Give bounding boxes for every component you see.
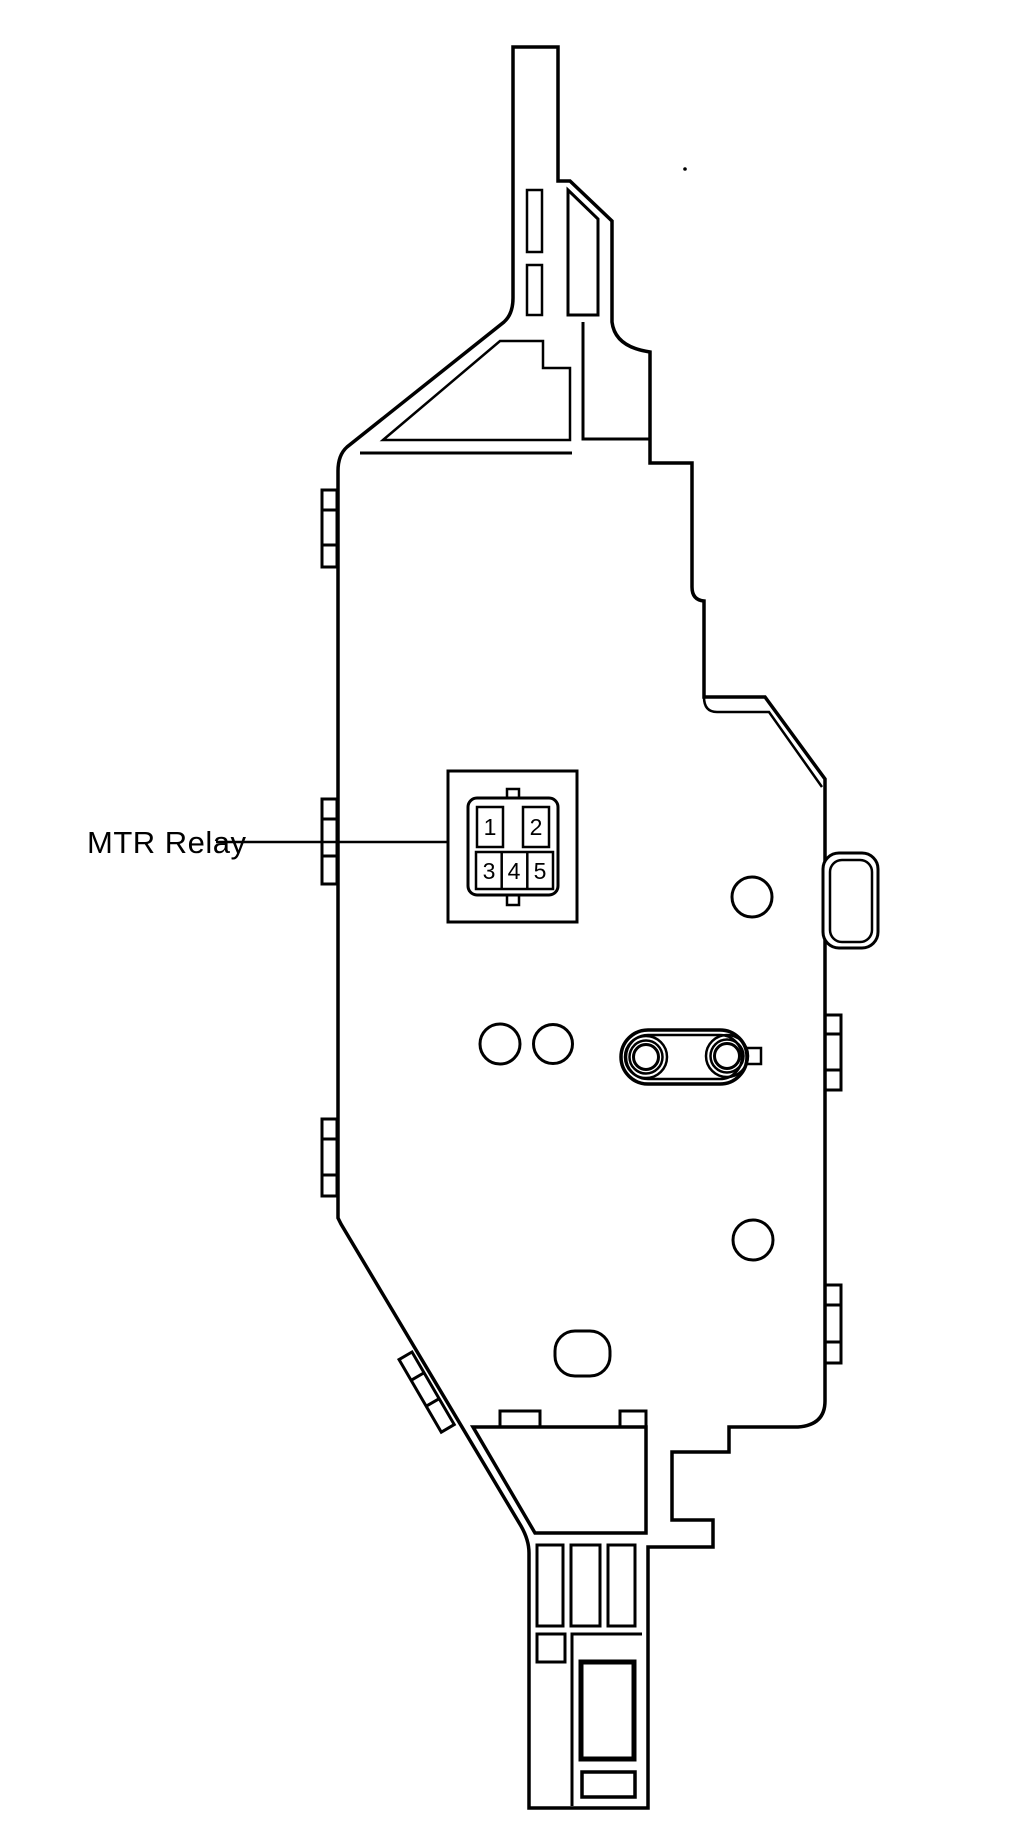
block-bump-right	[620, 1411, 646, 1427]
left-tab-1	[322, 490, 337, 567]
diagram-lines	[216, 47, 878, 1808]
fuse-box-diagram: MTR Relay 1 2 3 4 5	[0, 0, 1024, 1840]
relay-pin-1-label: 1	[484, 814, 497, 840]
left-tab-3	[322, 1119, 337, 1196]
right-tab-2	[825, 1285, 841, 1363]
block-bump-left	[500, 1411, 540, 1427]
relay-pin-2-label: 2	[530, 814, 543, 840]
double-grommet-fitting	[621, 1030, 761, 1084]
relay-pin-5-label: 5	[534, 858, 547, 884]
fuse-box-diagram-svg: MTR Relay 1 2 3 4 5	[0, 0, 1024, 1840]
reference-dot	[683, 167, 687, 171]
mtr-relay-label: MTR Relay	[87, 825, 247, 860]
relay-pin-3-label: 3	[483, 858, 496, 884]
right-tab-1	[825, 1015, 841, 1090]
relay-pin-4-label: 4	[508, 858, 521, 884]
